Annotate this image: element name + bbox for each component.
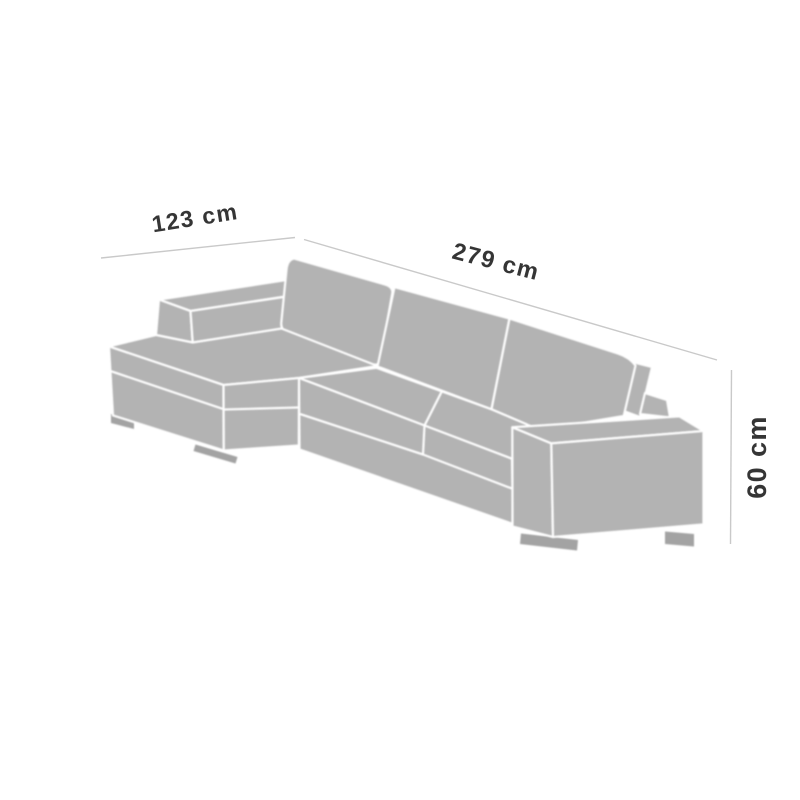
svg-text:123 cm: 123 cm [150,198,240,237]
svg-text:60 cm: 60 cm [742,415,772,499]
svg-text:279 cm: 279 cm [449,238,542,286]
